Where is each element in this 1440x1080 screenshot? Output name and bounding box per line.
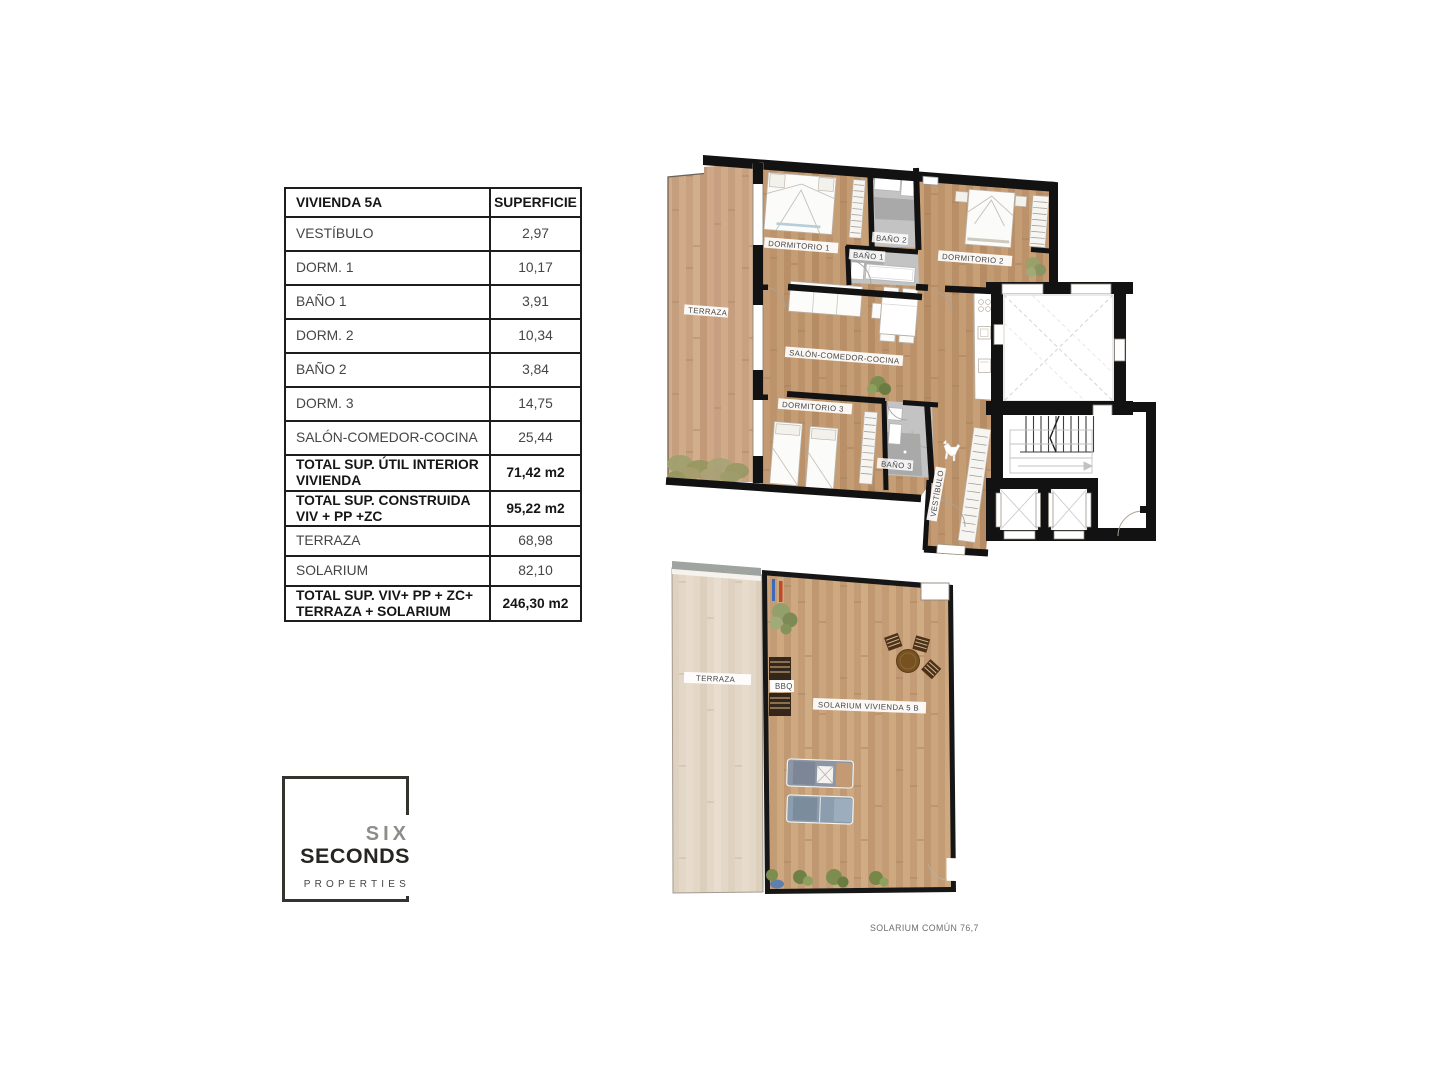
svg-text:TERRAZA: TERRAZA bbox=[696, 674, 736, 684]
svg-text:SOLARIUM COMÚN 76,7: SOLARIUM COMÚN 76,7 bbox=[870, 923, 979, 933]
svg-text:BBQ: BBQ bbox=[775, 682, 793, 691]
